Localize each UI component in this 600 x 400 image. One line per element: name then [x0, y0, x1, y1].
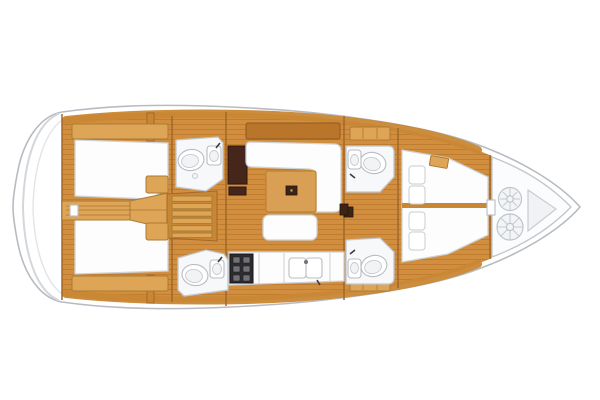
salon-sideboard [246, 123, 340, 139]
anchor-locker-hatch [487, 200, 495, 215]
aft-head-port-drain [192, 173, 197, 178]
galley-sink-left [289, 258, 306, 278]
rope-coil-top [499, 188, 522, 211]
nav-cabinet-tall [228, 146, 247, 184]
companionway-seat-bottom [146, 223, 168, 240]
aft-starboard-shelf [72, 276, 168, 291]
nav-cabinet [228, 146, 247, 195]
nav-cabinet-low [229, 187, 246, 195]
fwd-head-starboard [346, 238, 394, 284]
galley [229, 252, 344, 285]
galley-sink-right [306, 258, 322, 278]
aft-port-shelf [72, 124, 168, 139]
companionway-seat-top [146, 176, 168, 193]
rope-coil-bottom [497, 214, 523, 240]
galley-faucet [304, 260, 308, 264]
corridor-hatch [70, 205, 78, 216]
yacht-floor-plan [0, 0, 600, 400]
corridor-door [340, 204, 348, 215]
salon-bench [263, 215, 317, 240]
locker-steps-top [350, 127, 390, 140]
fwd-head-port [346, 146, 394, 192]
floor-plan-canvas [0, 0, 600, 400]
aft-head-starboard [178, 250, 228, 296]
aft-head-port [176, 137, 223, 191]
